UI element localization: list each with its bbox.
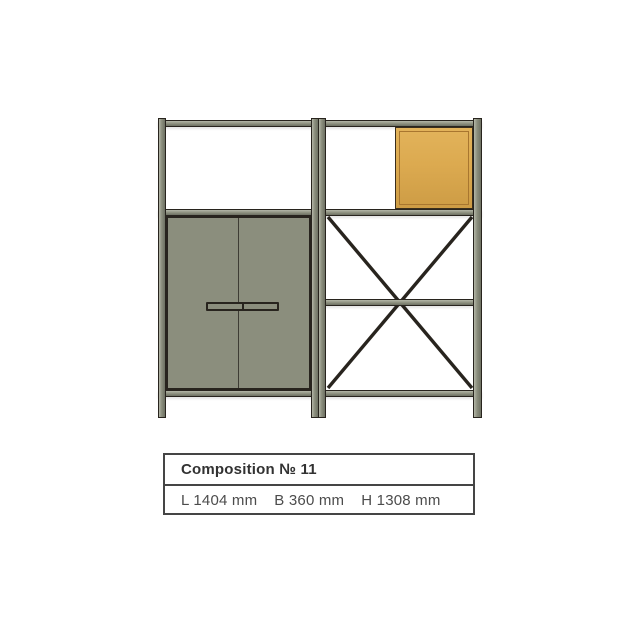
- middle-shelf: [314, 299, 480, 306]
- dim-height: H 1308 mm: [361, 492, 440, 509]
- diagram-canvas: Composition № 11 L 1404 mm B 360 mm H 13…: [0, 0, 640, 640]
- orange-storage-box: [395, 127, 473, 209]
- spec-title-row: Composition № 11: [165, 455, 473, 486]
- dim-length: L 1404 mm: [181, 492, 257, 509]
- post-middle-right: [318, 118, 326, 418]
- post-left: [158, 118, 166, 418]
- spec-dims-row: L 1404 mm B 360 mm H 1308 mm: [165, 486, 473, 515]
- cabinet: [166, 216, 311, 390]
- spec-label: Composition № 11 L 1404 mm B 360 mm H 13…: [163, 453, 475, 515]
- composition-title: Composition № 11: [181, 461, 317, 478]
- cabinet-handle: [206, 302, 279, 311]
- post-right: [473, 118, 482, 418]
- shelving-unit-illustration: [158, 118, 482, 418]
- dim-depth: B 360 mm: [274, 492, 344, 509]
